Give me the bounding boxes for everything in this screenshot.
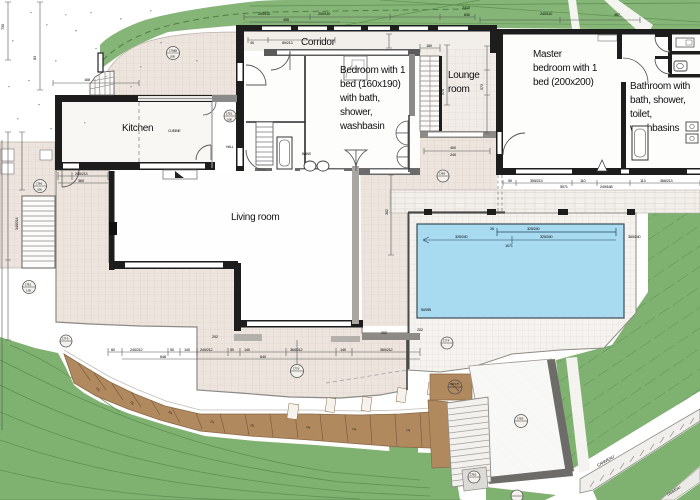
svg-text:355/213: 355/213 [530, 178, 543, 183]
svg-text:bath, shower,: bath, shower, [630, 95, 686, 106]
svg-text:200/110: 200/110 [258, 11, 271, 16]
svg-text:washbasin: washbasin [339, 121, 385, 132]
svg-text:325/240: 325/240 [527, 226, 540, 231]
svg-text:ALT 177: ALT 177 [450, 382, 460, 386]
svg-text:200/110: 200/110 [318, 11, 331, 16]
svg-text:CUISINE: CUISINE [168, 129, 181, 133]
svg-text:Bathroom with: Bathroom with [630, 81, 690, 92]
svg-text:2410: 2410 [462, 5, 471, 10]
svg-text:360/212: 360/212 [380, 347, 393, 352]
svg-text:249/168: 249/168 [600, 184, 613, 189]
svg-text:HALL: HALL [226, 145, 234, 149]
svg-text:176.5: 176.5 [470, 473, 477, 477]
svg-text:340/214: 340/214 [14, 217, 19, 230]
svg-text:240/110: 240/110 [540, 11, 553, 16]
svg-text:bed (160x190): bed (160x190) [340, 79, 401, 90]
svg-text:0.00: 0.00 [227, 118, 232, 122]
svg-text:1.00: 1.00 [26, 289, 31, 293]
svg-text:bedroom with 1: bedroom with 1 [533, 63, 598, 74]
svg-text:178.1: 178.1 [25, 283, 32, 287]
svg-text:with bath,: with bath, [339, 93, 380, 104]
svg-text:325/240: 325/240 [540, 234, 553, 239]
svg-text:325/240: 325/240 [455, 234, 468, 239]
svg-text:bed (200x200): bed (200x200) [533, 77, 594, 88]
svg-text:room: room [448, 84, 470, 95]
svg-text:Corridor: Corridor [301, 37, 336, 48]
svg-text:0.50: 0.50 [37, 188, 42, 192]
svg-text:366/213: 366/213 [660, 178, 673, 183]
svg-text:Lounge: Lounge [448, 70, 480, 81]
svg-text:178.9: 178.9 [439, 172, 446, 176]
svg-text:5971: 5971 [560, 184, 569, 189]
svg-text:80/213: 80/213 [282, 40, 294, 45]
svg-text:0.00: 0.00 [170, 55, 175, 59]
svg-text:360/240: 360/240 [628, 234, 641, 239]
svg-text:240/212: 240/212 [200, 347, 213, 352]
svg-text:240/212: 240/212 [130, 347, 143, 352]
svg-text:179.1: 179.1 [226, 112, 233, 116]
svg-text:Bedroom with 1: Bedroom with 1 [340, 65, 406, 76]
svg-text:Living room: Living room [231, 212, 279, 223]
svg-text:Master: Master [533, 49, 563, 60]
svg-text:1071: 1071 [505, 243, 514, 248]
svg-text:178.6: 178.6 [36, 182, 43, 186]
svg-text:BAINS: BAINS [302, 152, 312, 156]
svg-text:177.9: 177.9 [62, 337, 69, 341]
svg-text:176.8: 176.8 [517, 417, 524, 421]
svg-text:shower,: shower, [340, 107, 372, 118]
svg-text:360/212: 360/212 [290, 347, 303, 352]
svg-text:BASSIN: BASSIN [421, 308, 432, 312]
svg-text:260/213: 260/213 [75, 171, 88, 176]
svg-text:177.4: 177.4 [443, 339, 450, 343]
svg-text:Kitchen: Kitchen [122, 123, 153, 134]
svg-text:179.10: 179.10 [169, 49, 177, 53]
svg-text:toilet,: toilet, [630, 109, 652, 120]
svg-text:177.6: 177.6 [293, 367, 300, 371]
